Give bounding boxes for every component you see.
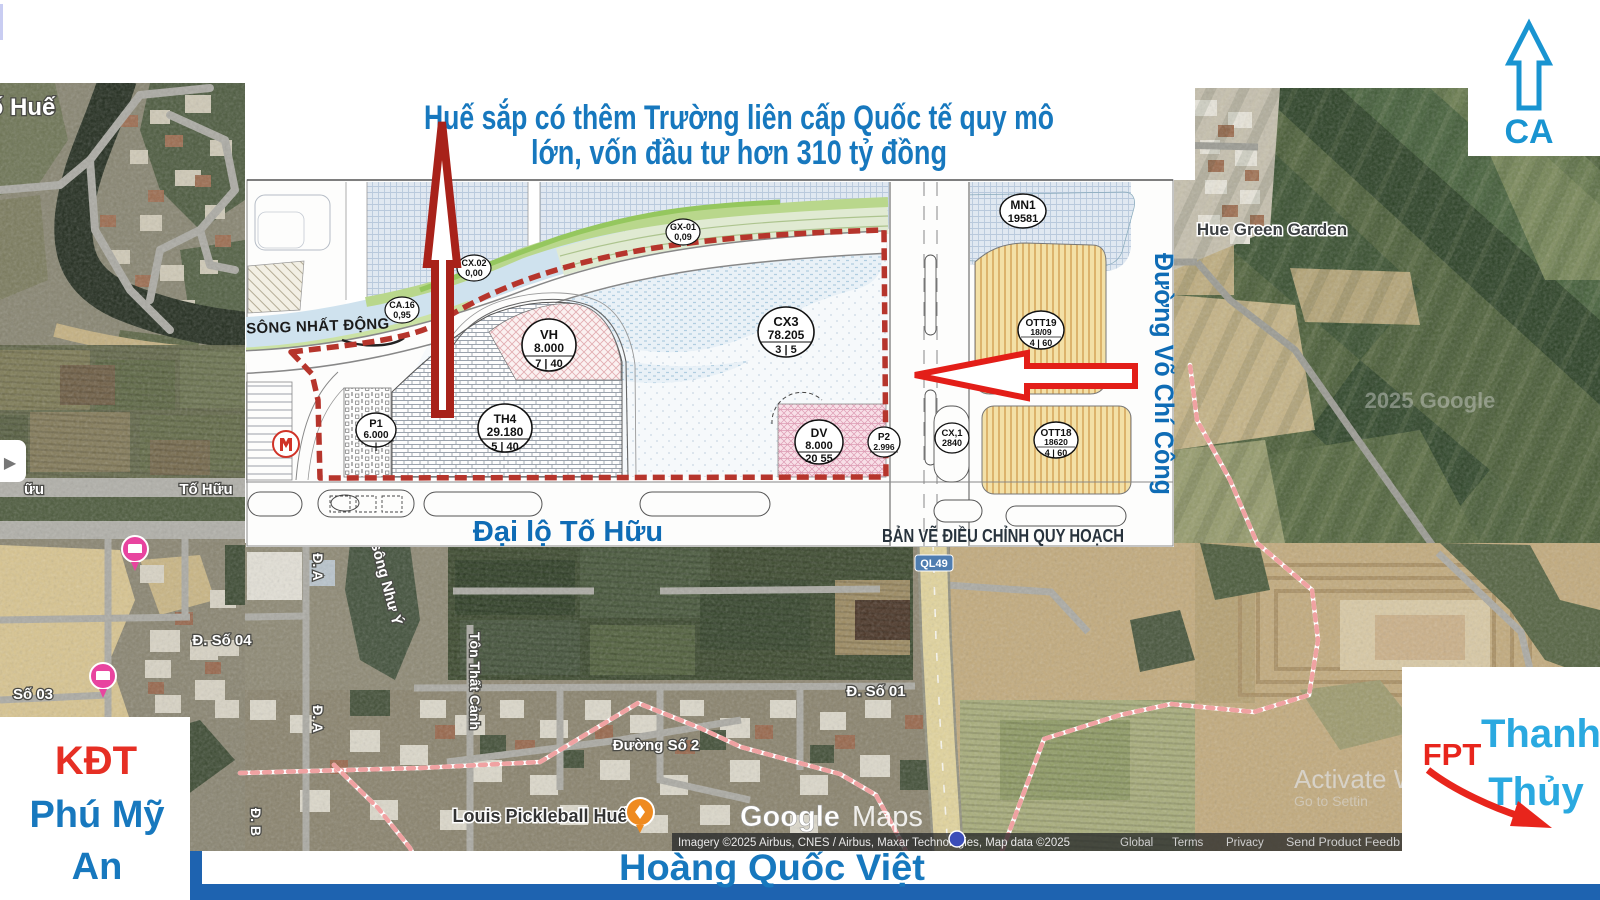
svg-text:0,09: 0,09 (674, 232, 692, 242)
svg-text:QL49: QL49 (920, 558, 948, 570)
svg-text:Đường Số 2: Đường Số 2 (613, 737, 700, 754)
svg-text:Privacy: Privacy (1226, 837, 1264, 849)
svg-text:18/09: 18/09 (1030, 327, 1052, 337)
svg-text:TH4: TH4 (494, 412, 517, 426)
svg-text:DV: DV (811, 426, 828, 440)
svg-text:MN1: MN1 (1010, 198, 1036, 212)
svg-text:Louis Pickleball Huế: Louis Pickleball Huế (452, 806, 628, 826)
svg-text:Terms: Terms (1172, 837, 1204, 849)
svg-text:Go to Settin: Go to Settin (1294, 793, 1368, 809)
svg-text:Tôn Thất Cảnh: Tôn Thất Cảnh (467, 632, 483, 730)
svg-text:Đ. A: Đ. A (310, 705, 326, 732)
svg-text:3 | 5: 3 | 5 (775, 344, 796, 356)
svg-text:Global: Global (1120, 837, 1153, 849)
svg-text:BẢN VẼ ĐIỀU CHỈNH QUY HOẠCH: BẢN VẼ ĐIỀU CHỈNH QUY HOẠCH (882, 525, 1124, 546)
svg-text:Thanh: Thanh (1481, 712, 1600, 756)
svg-text:5 | 40: 5 | 40 (491, 441, 519, 453)
svg-text:2840: 2840 (942, 438, 962, 448)
svg-text:CX3: CX3 (773, 314, 798, 329)
svg-text:0,00: 0,00 (465, 268, 483, 278)
svg-text:VH: VH (540, 327, 558, 342)
svg-text:ữu: ữu (24, 481, 44, 498)
svg-text:- | -: - | - (369, 441, 383, 451)
svg-text:18620: 18620 (1044, 437, 1068, 447)
svg-text:An: An (72, 846, 123, 888)
svg-text:Đ. Số 04: Đ. Số 04 (192, 632, 252, 649)
svg-text:8.000: 8.000 (534, 341, 564, 355)
svg-text:78.205: 78.205 (768, 328, 805, 342)
svg-text:KĐT: KĐT (55, 739, 137, 783)
svg-text:ố Huế: ố Huế (0, 94, 56, 121)
svg-text:29.180: 29.180 (487, 425, 524, 439)
svg-text:20 55: 20 55 (805, 453, 833, 465)
svg-text:Hoàng Quốc Việt: Hoàng Quốc Việt (619, 847, 925, 888)
svg-text:Đ. B: Đ. B (248, 808, 264, 836)
svg-text:lớn, vốn đầu tư hơn 310 tỷ đồn: lớn, vốn đầu tư hơn 310 tỷ đồng (531, 134, 947, 172)
svg-text:Tố Hữu: Tố Hữu (179, 481, 232, 498)
svg-text:6.000: 6.000 (363, 430, 388, 441)
svg-text:Huế sắp có thêm Trường liên cấ: Huế sắp có thêm Trường liên cấp Quốc tế … (424, 99, 1054, 137)
svg-text:P1: P1 (369, 418, 382, 430)
svg-text:2.996: 2.996 (873, 442, 895, 452)
svg-text:CA: CA (1504, 113, 1553, 151)
svg-text:Hue Green Garden: Hue Green Garden (1197, 220, 1347, 239)
svg-text:0,95: 0,95 (393, 310, 411, 320)
svg-text:8.000: 8.000 (805, 440, 833, 452)
svg-text:Đ. A: Đ. A (310, 553, 326, 580)
svg-text:Phú Mỹ: Phú Mỹ (29, 794, 164, 836)
svg-text:Google: Google (740, 801, 840, 833)
svg-text:4 | 60: 4 | 60 (1030, 338, 1053, 348)
svg-text:CX.02: CX.02 (461, 258, 486, 268)
svg-text:4 | 60: 4 | 60 (1045, 448, 1068, 458)
svg-text:Số 03: Số 03 (13, 686, 53, 703)
svg-text:Đ. Số 01: Đ. Số 01 (846, 683, 905, 700)
svg-text:7 | 40: 7 | 40 (535, 358, 563, 370)
svg-text:FPT: FPT (1423, 737, 1482, 772)
svg-text:GX-01: GX-01 (670, 222, 696, 232)
svg-text:▶: ▶ (4, 455, 17, 472)
svg-text:Send Product Feedb: Send Product Feedb (1286, 837, 1400, 849)
svg-text:Maps: Maps (852, 801, 923, 833)
svg-text:Đường Võ Chí Công: Đường Võ Chí Công (1149, 253, 1179, 495)
svg-text:19581: 19581 (1008, 213, 1039, 225)
svg-text:CA.16: CA.16 (389, 300, 415, 310)
svg-text:Đại lộ Tố Hữu: Đại lộ Tố Hữu (473, 516, 663, 548)
